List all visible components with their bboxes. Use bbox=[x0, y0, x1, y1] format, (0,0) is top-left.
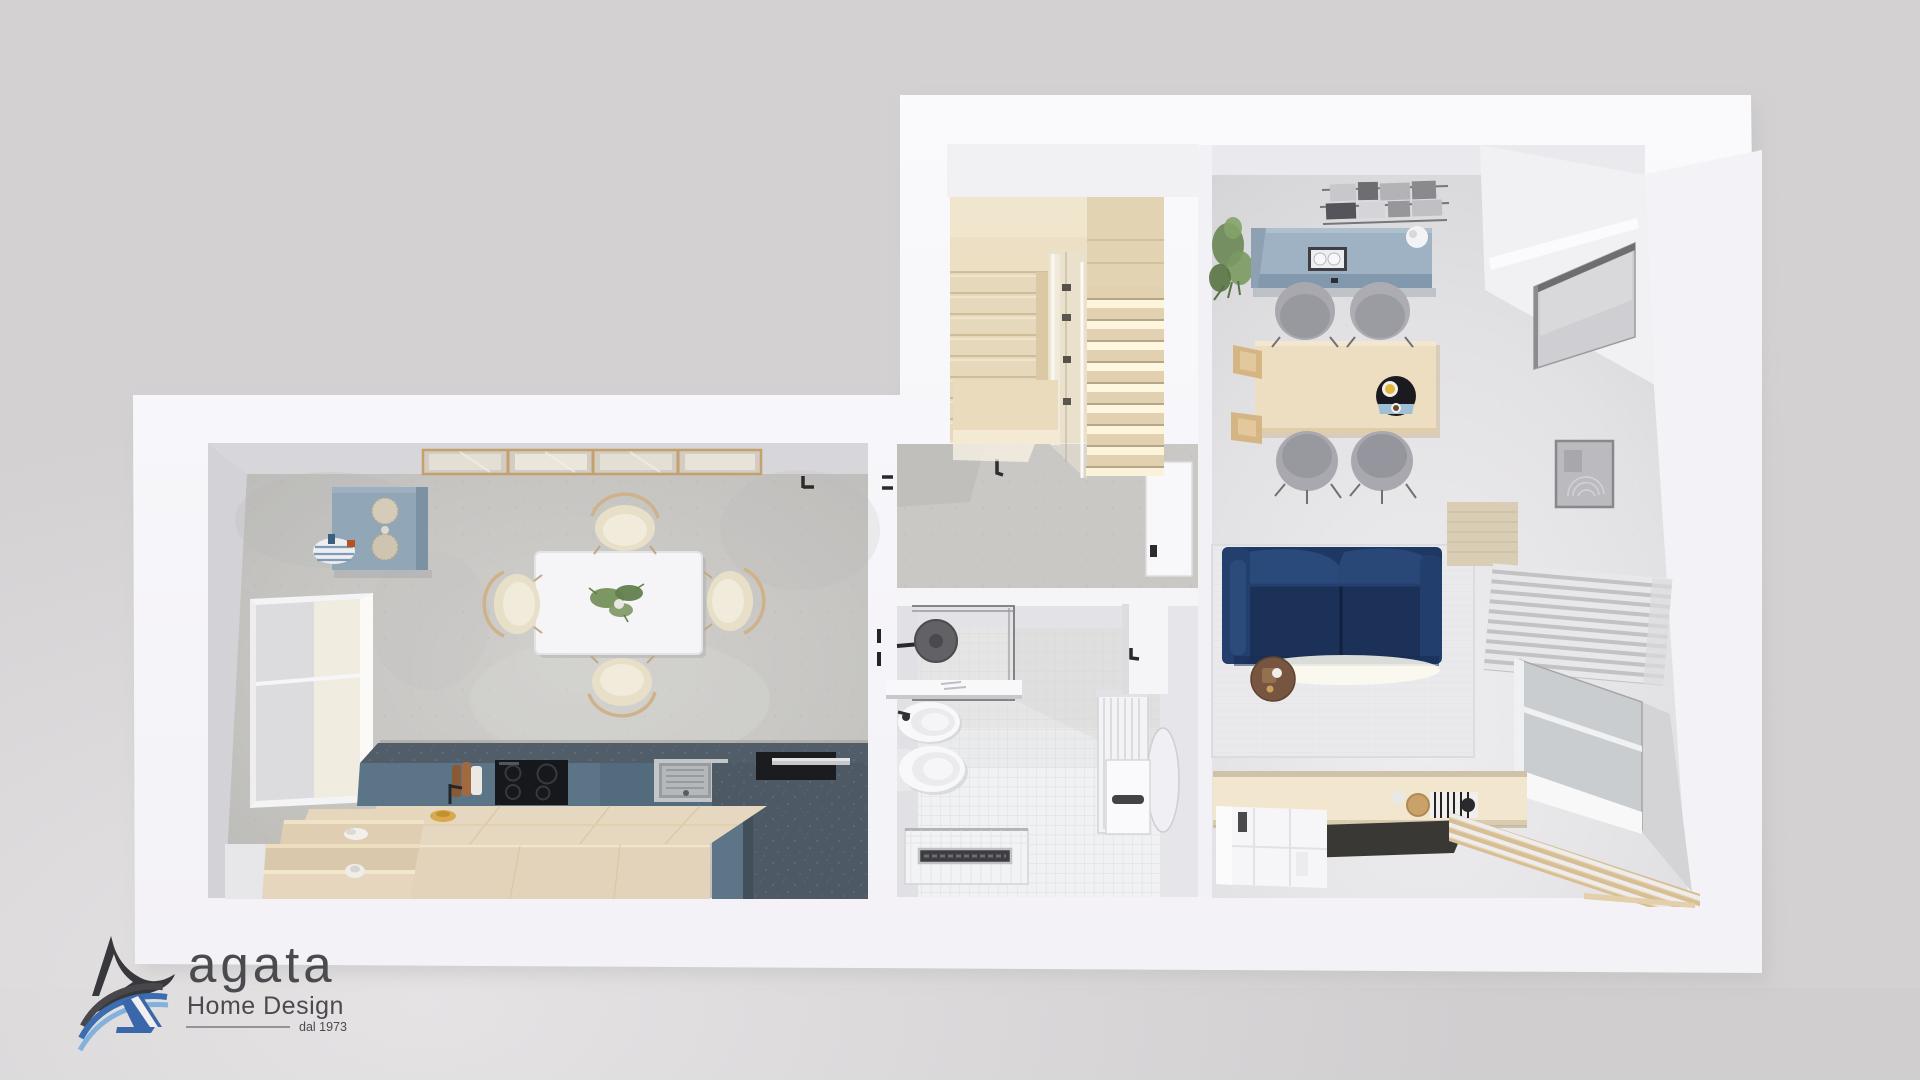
svg-text:Home Design: Home Design bbox=[187, 992, 344, 1020]
svg-text:dal 1973: dal 1973 bbox=[299, 1020, 347, 1034]
svg-text:agata: agata bbox=[188, 936, 336, 993]
